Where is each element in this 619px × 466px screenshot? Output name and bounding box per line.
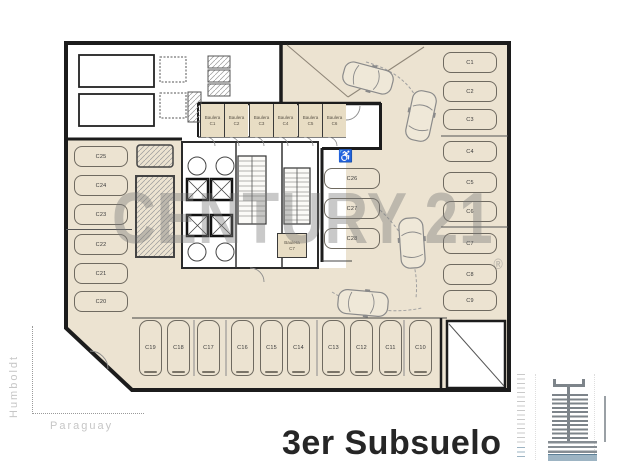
property-line-vertical (32, 326, 33, 414)
parking-spot: C25 (74, 146, 128, 167)
parking-spot-label: C8 (466, 272, 473, 278)
century21-watermark: CENTURY 21® (112, 178, 504, 260)
parking-spot: C2 (443, 81, 497, 102)
parking-spot-label: C4 (466, 149, 473, 155)
floorplan-canvas: C25 C24 C23 C22 C21 C20 C1 C2 C3 C4 C5 C… (0, 0, 619, 466)
parking-spot-label: C17 (203, 345, 214, 351)
parking-spot-label: C14 (293, 345, 304, 351)
page-title: 3er Subsuelo (282, 424, 502, 463)
storage-unit-code: C4 (283, 121, 289, 126)
parking-spot: C16 (231, 320, 254, 376)
parking-spot: C1 (443, 52, 497, 73)
parking-spot-label: C3 (466, 117, 473, 123)
parking-spot: C14 (287, 320, 310, 376)
parking-spot-label: C1 (466, 60, 473, 66)
parking-spot: C8 (443, 264, 497, 285)
parking-spot-label: C2 (466, 89, 473, 95)
storage-unit-code: C2 (234, 121, 240, 126)
parking-spot-label: C18 (173, 345, 184, 351)
registered-mark: ® (493, 256, 503, 273)
street-label-paraguay: Paraguay (50, 420, 113, 432)
parking-spot: C9 (443, 290, 497, 311)
parking-spot: C17 (197, 320, 220, 376)
storage-unit: BauleraC1 (200, 104, 224, 137)
elevation-roof-detail (582, 379, 585, 386)
parking-spot: C13 (322, 320, 345, 376)
parking-spot-label: C19 (145, 345, 156, 351)
property-line-horizontal (32, 413, 144, 414)
elevation-tower-floors (552, 394, 588, 441)
parking-spot-label: C25 (96, 154, 107, 160)
parking-spot: C10 (409, 320, 432, 376)
parking-spot-label: C21 (96, 271, 107, 277)
parking-spot: C15 (260, 320, 283, 376)
parking-spot-label: C10 (415, 345, 426, 351)
parking-spot-label: C16 (237, 345, 248, 351)
parking-spot-label: C15 (266, 345, 277, 351)
storage-unit: BauleraC5 (298, 104, 322, 137)
parking-spot-label: C11 (385, 345, 395, 351)
parking-spot-label: C13 (328, 345, 339, 351)
parking-spot-label: C23 (96, 212, 107, 218)
parking-spot-label: C12 (356, 345, 367, 351)
parking-spot: C20 (74, 291, 128, 312)
elevation-side-line (604, 396, 606, 442)
parking-spot-label: C24 (96, 183, 107, 189)
parking-spot: C18 (167, 320, 190, 376)
storage-unit-code: C6 (332, 121, 338, 126)
storage-unit-code: C3 (259, 121, 265, 126)
parking-spot: C12 (350, 320, 373, 376)
parking-spot-label: C20 (96, 299, 107, 305)
parking-spot-label: C22 (96, 242, 107, 248)
storage-unit: BauleraC2 (224, 104, 248, 137)
parking-spot: C3 (443, 109, 497, 130)
parking-spot: C4 (443, 141, 497, 162)
parking-spot-label: C9 (466, 298, 473, 304)
parking-spot: C21 (74, 263, 128, 284)
watermark-text: CENTURY 21 (112, 179, 493, 259)
elevation-level-ticks (517, 374, 525, 446)
storage-unit: BauleraC6 (322, 104, 346, 137)
elevation-podium-floors (548, 441, 597, 454)
elevation-roof-detail (553, 379, 556, 386)
storage-unit: BauleraC4 (273, 104, 297, 137)
parking-spot: C11 (379, 320, 402, 376)
storage-unit-code: C5 (308, 121, 314, 126)
storage-unit: BauleraC3 (249, 104, 273, 137)
street-label-humboldt: Humboldt (8, 330, 20, 418)
elevation-basement-highlight (548, 454, 597, 461)
elevation-basement-ticks (517, 447, 525, 460)
wheelchair-accessible-icon: ♿ (338, 149, 353, 163)
elevation-guide-line (535, 374, 536, 460)
storage-unit-code: C1 (210, 121, 216, 126)
parking-spot: C19 (139, 320, 162, 376)
